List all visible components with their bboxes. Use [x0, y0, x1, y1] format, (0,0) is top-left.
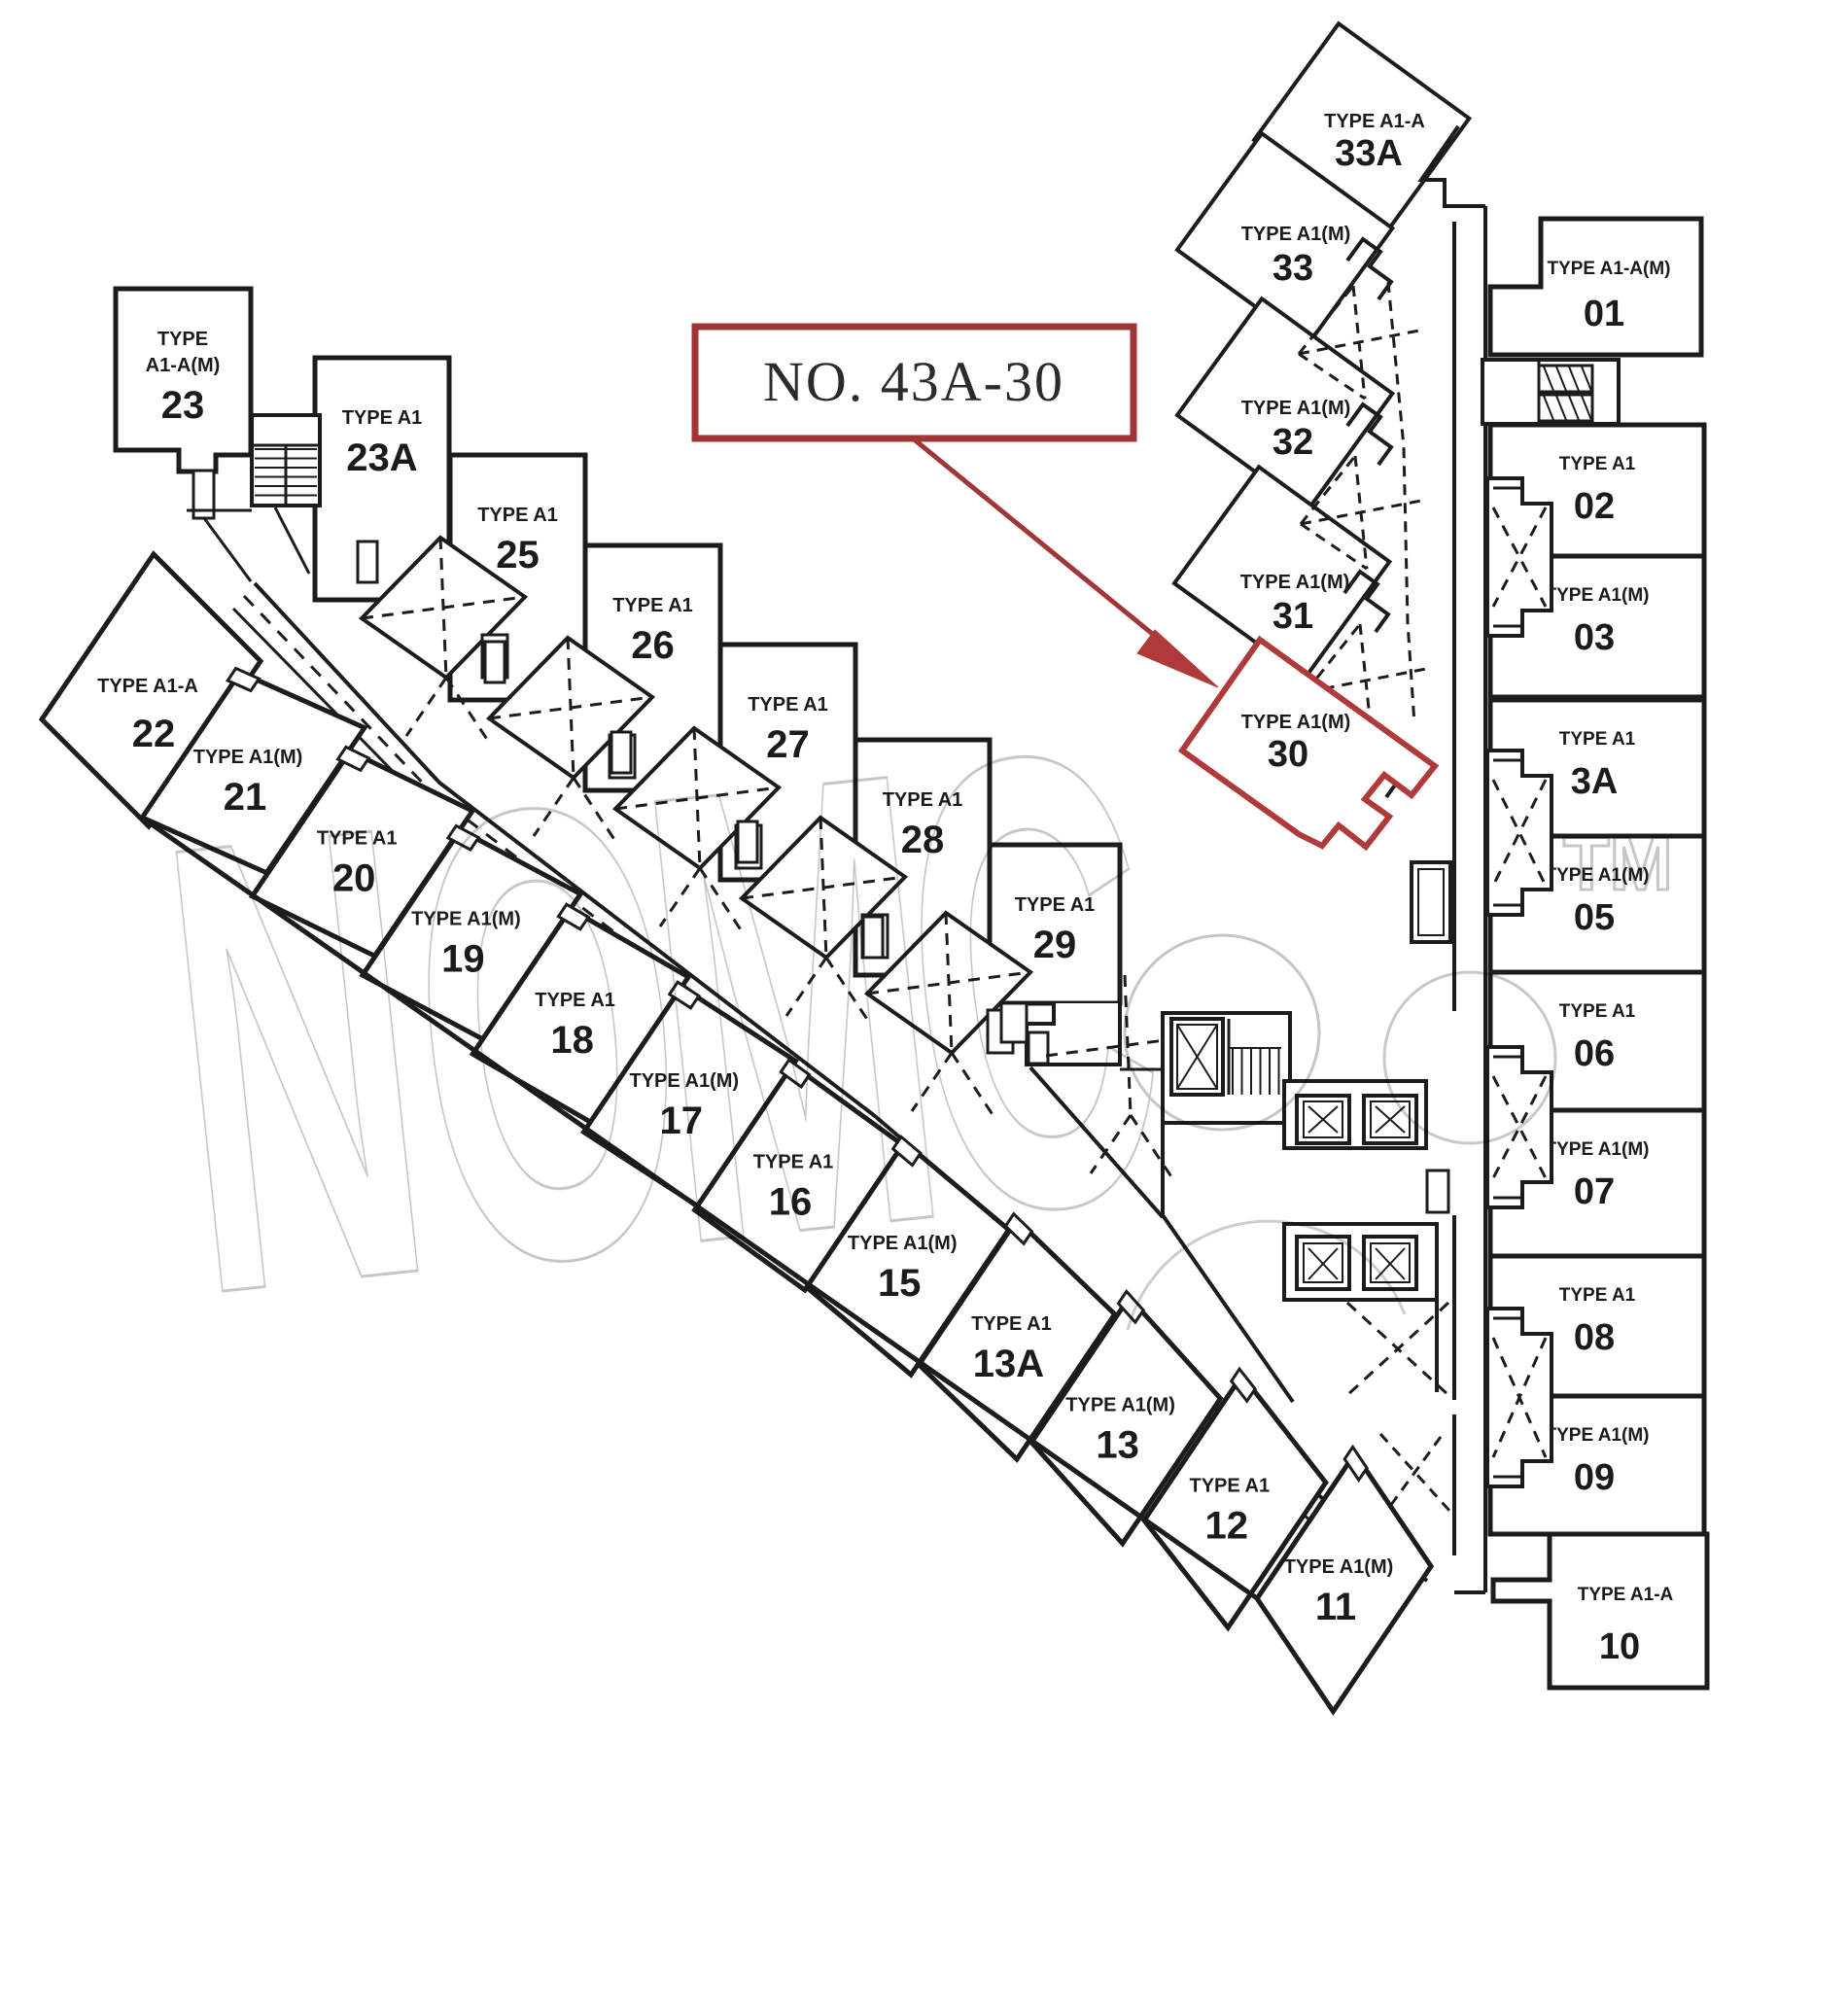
svg-text:23A: 23A: [346, 437, 417, 479]
svg-text:TYPE: TYPE: [157, 329, 208, 350]
svg-text:TYPE A1(M): TYPE A1(M): [1546, 1139, 1650, 1160]
svg-text:TYPE A1(M): TYPE A1(M): [1284, 1556, 1394, 1578]
svg-text:33: 33: [1273, 248, 1313, 289]
svg-text:10: 10: [1599, 1626, 1640, 1667]
svg-text:30: 30: [1268, 734, 1308, 775]
svg-text:23: 23: [161, 384, 205, 427]
svg-text:09: 09: [1574, 1457, 1615, 1498]
svg-text:NO. 43A-30: NO. 43A-30: [763, 350, 1064, 413]
svg-text:25: 25: [496, 534, 540, 576]
svg-text:02: 02: [1574, 486, 1615, 527]
svg-text:TYPE A1: TYPE A1: [1559, 729, 1636, 750]
svg-text:TM: TM: [1563, 821, 1673, 906]
svg-text:TYPE A1: TYPE A1: [342, 407, 423, 429]
svg-text:03: 03: [1574, 617, 1615, 658]
svg-text:TYPE A1(M): TYPE A1(M): [1241, 712, 1351, 733]
svg-text:TYPE A1: TYPE A1: [1559, 1001, 1636, 1022]
svg-text:06: 06: [1574, 1033, 1615, 1074]
svg-text:33A: 33A: [1335, 133, 1403, 174]
svg-text:13A: 13A: [973, 1343, 1044, 1385]
svg-text:01: 01: [1584, 294, 1624, 334]
svg-text:TYPE A1: TYPE A1: [1559, 454, 1636, 474]
svg-text:32: 32: [1273, 422, 1313, 463]
svg-text:11: 11: [1315, 1586, 1356, 1628]
svg-text:08: 08: [1574, 1317, 1615, 1358]
svg-text:TYPE A1: TYPE A1: [612, 595, 693, 616]
svg-text:TYPE A1: TYPE A1: [1559, 1285, 1636, 1306]
svg-text:TYPE A1(M): TYPE A1(M): [1546, 1425, 1650, 1446]
svg-text:07: 07: [1574, 1171, 1615, 1212]
svg-text:26: 26: [631, 624, 675, 667]
svg-text:13: 13: [1096, 1423, 1139, 1466]
svg-text:TYPE A1-A: TYPE A1-A: [97, 676, 198, 697]
svg-text:TYPE A1: TYPE A1: [1189, 1476, 1270, 1497]
svg-text:TYPE A1-A: TYPE A1-A: [1578, 1585, 1674, 1605]
svg-text:TYPE A1(M): TYPE A1(M): [1546, 585, 1650, 606]
svg-text:TYPE A1(M): TYPE A1(M): [1065, 1394, 1175, 1415]
svg-text:TYPE A1: TYPE A1: [477, 505, 558, 526]
svg-text:31: 31: [1273, 596, 1313, 637]
svg-text:TYPE A1-A: TYPE A1-A: [1324, 111, 1425, 132]
svg-text:TYPE A1(M): TYPE A1(M): [1240, 572, 1350, 593]
svg-text:TYPE A1(M): TYPE A1(M): [1241, 398, 1351, 419]
svg-text:3A: 3A: [1571, 761, 1619, 802]
svg-text:TYPE A1-A(M): TYPE A1-A(M): [1547, 259, 1670, 279]
svg-text:TYPE A1(M): TYPE A1(M): [1241, 224, 1351, 245]
svg-text:A1-A(M): A1-A(M): [146, 355, 221, 376]
svg-text:12: 12: [1205, 1505, 1249, 1548]
